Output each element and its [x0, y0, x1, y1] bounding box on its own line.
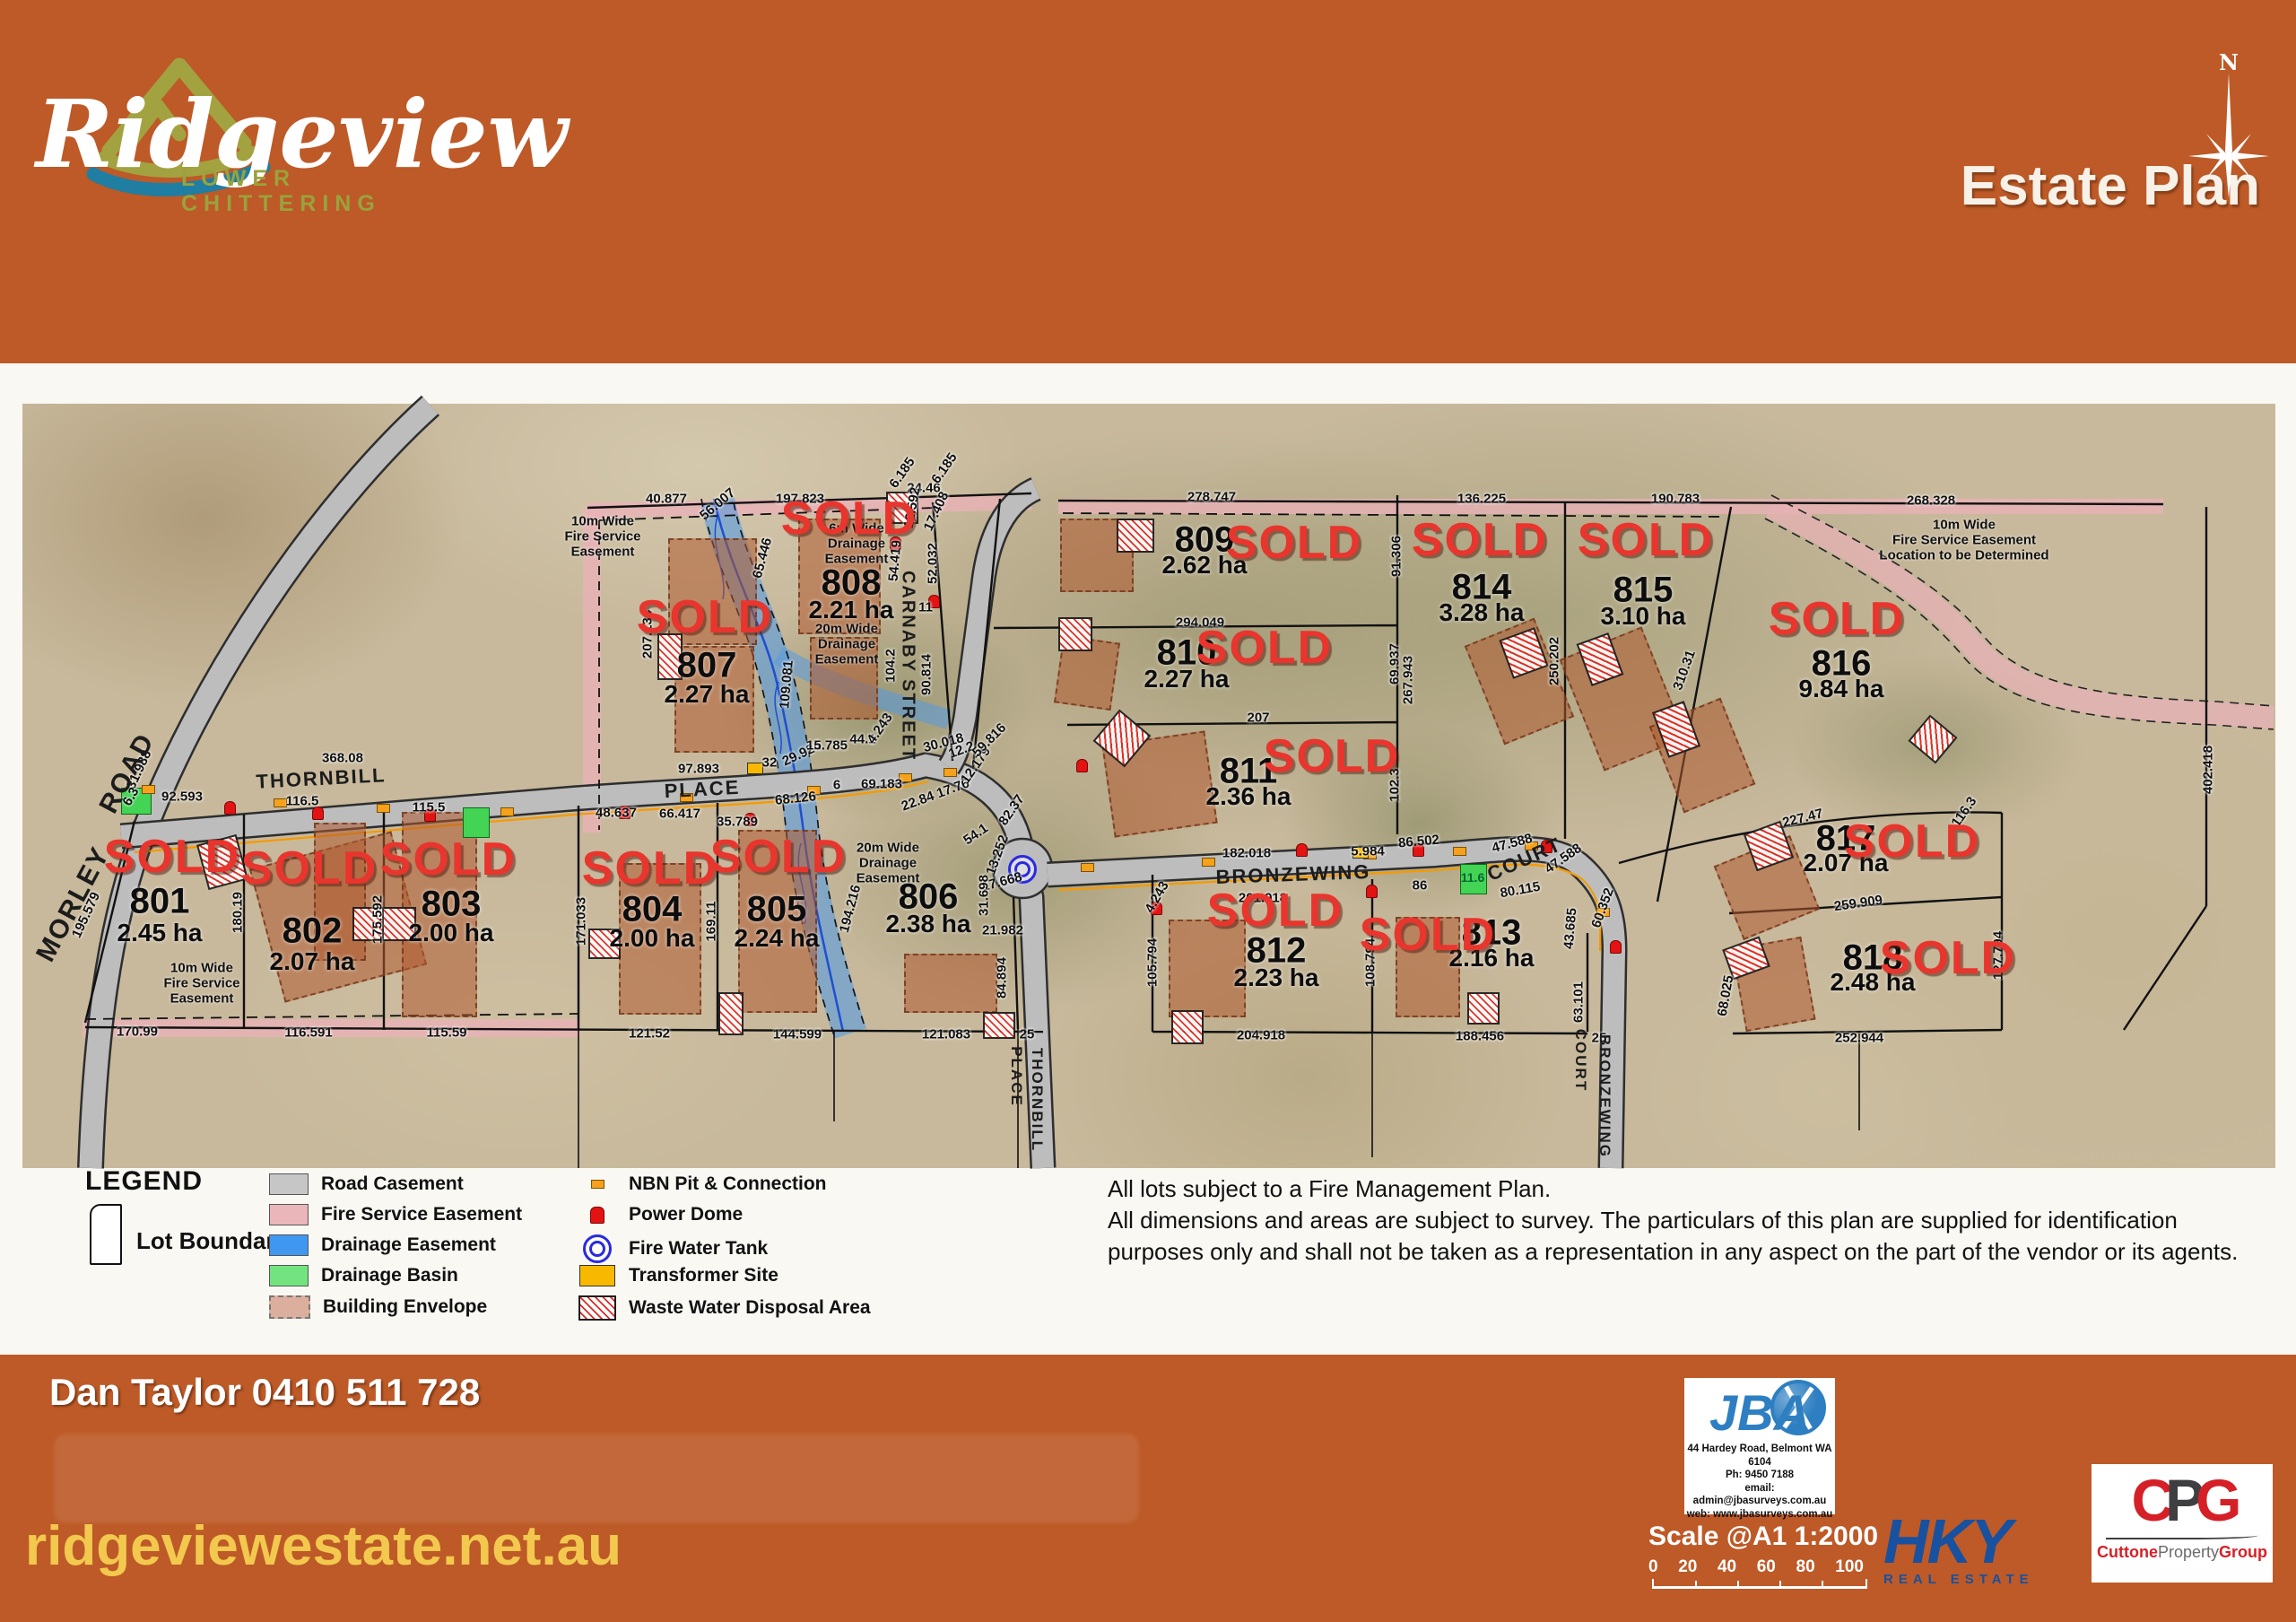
scale-tick-labels: 020406080100 — [1648, 1557, 1864, 1577]
scale-label: Scale @A1 1:2000 — [1648, 1522, 1878, 1552]
legend-item-road-casement: Road Casement — [269, 1173, 464, 1195]
compass-north-label: N — [2219, 49, 2239, 75]
legend-label: Waste Water Disposal Area — [629, 1297, 871, 1319]
legend-swatch — [269, 1173, 309, 1195]
disclaimer-line-1: All lots subject to a Fire Management Pl… — [1108, 1173, 2265, 1205]
header-band: Ridgeview LOWER CHITTERING Estate Plan N — [0, 0, 2296, 363]
hky-sub: REAL ESTATE — [1883, 1572, 2034, 1587]
legend-item-drainage-easement: Drainage Easement — [269, 1234, 496, 1256]
jba-name: JBA — [1684, 1383, 1835, 1443]
jba-email: email: admin@jbasurveys.com.au — [1684, 1482, 1835, 1508]
legend-item-transformer-site: Transformer Site — [578, 1265, 778, 1286]
cpg-subtitle: CuttonePropertyGroup — [2092, 1543, 2273, 1562]
legend-item-power-dome: Power Dome — [578, 1204, 743, 1225]
scale-tick: 100 — [1835, 1557, 1864, 1577]
nbn-pit-icon — [578, 1180, 616, 1189]
cpg-swoosh-icon — [2106, 1532, 2258, 1539]
disclaimer-line-2: All dimensions and areas are subject to … — [1108, 1205, 2265, 1236]
aerial-photo — [22, 404, 2275, 1168]
lot-boundary-label: Lot Boundary — [136, 1227, 288, 1255]
website-link[interactable]: ridgeviewestate.net.au — [25, 1514, 622, 1578]
legend-swatch — [269, 1234, 309, 1256]
legend-item-fire-water-tank: Fire Water Tank — [578, 1234, 768, 1263]
scale-tick: 0 — [1648, 1557, 1658, 1577]
legend-label: Building Envelope — [323, 1296, 487, 1318]
scale-tick: 60 — [1757, 1557, 1776, 1577]
transformer-site-icon — [578, 1265, 616, 1286]
legend-item-waste-water-disposal-area: Waste Water Disposal Area — [578, 1295, 871, 1321]
cpg-logo: CPG CuttonePropertyGroup — [2092, 1464, 2273, 1583]
scale-bar — [1652, 1579, 1867, 1589]
fire-water-tank-icon — [578, 1234, 616, 1263]
legend-label: Road Casement — [321, 1173, 464, 1195]
jba-surveys-logo: JBA 44 Hardey Road, Belmont WA 6104 Ph: … — [1684, 1378, 1835, 1514]
legend-label: NBN Pit & Connection — [629, 1173, 827, 1195]
legend-title: LEGEND — [85, 1166, 203, 1197]
legend-item-nbn-pit-connection: NBN Pit & Connection — [578, 1173, 827, 1195]
tagline-chittering: CHITTERING — [181, 191, 381, 217]
legend-item-building-envelope: Building Envelope — [269, 1295, 487, 1319]
legend-swatch — [269, 1265, 309, 1286]
cpg-letters: CPG — [2092, 1468, 2273, 1532]
estate-plan-page: Ridgeview LOWER CHITTERING Estate Plan N — [0, 0, 2296, 1622]
tagline-lower: LOWER — [181, 166, 296, 192]
legend-label: Drainage Easement — [321, 1234, 496, 1256]
legend-swatch — [269, 1295, 310, 1319]
power-dome-icon — [578, 1207, 616, 1224]
faded-text-area — [54, 1434, 1139, 1523]
legend-label: Drainage Basin — [321, 1265, 458, 1286]
scale-tick: 80 — [1796, 1557, 1815, 1577]
hky-realestate-logo: HKY REAL ESTATE — [1883, 1505, 2034, 1587]
jba-web: web: www.jbasurveys.com.au — [1684, 1508, 1835, 1522]
hky-name: HKY — [1883, 1505, 2034, 1577]
jba-address: 44 Hardey Road, Belmont WA 6104 — [1684, 1443, 1835, 1469]
disclaimer-text: All lots subject to a Fire Management Pl… — [1108, 1173, 2265, 1268]
legend-label: Fire Water Tank — [629, 1238, 768, 1260]
legend-label: Power Dome — [629, 1204, 743, 1225]
disclaimer-line-3: purposes only and shall not be taken as … — [1108, 1236, 2265, 1268]
legend-swatch — [269, 1204, 309, 1225]
legend-label: Transformer Site — [629, 1265, 778, 1286]
legend-item-drainage-basin: Drainage Basin — [269, 1265, 458, 1286]
legend-label: Fire Service Easement — [321, 1204, 522, 1225]
scale-tick: 20 — [1678, 1557, 1697, 1577]
lot-boundary-icon — [90, 1204, 122, 1265]
scale-tick: 40 — [1718, 1557, 1736, 1577]
agent-contact: Dan Taylor 0410 511 728 — [49, 1371, 480, 1414]
jba-phone: Ph: 9450 7188 — [1684, 1469, 1835, 1482]
legend-item-fire-service-easement: Fire Service Easement — [269, 1204, 522, 1225]
waste-water-icon — [578, 1295, 616, 1321]
